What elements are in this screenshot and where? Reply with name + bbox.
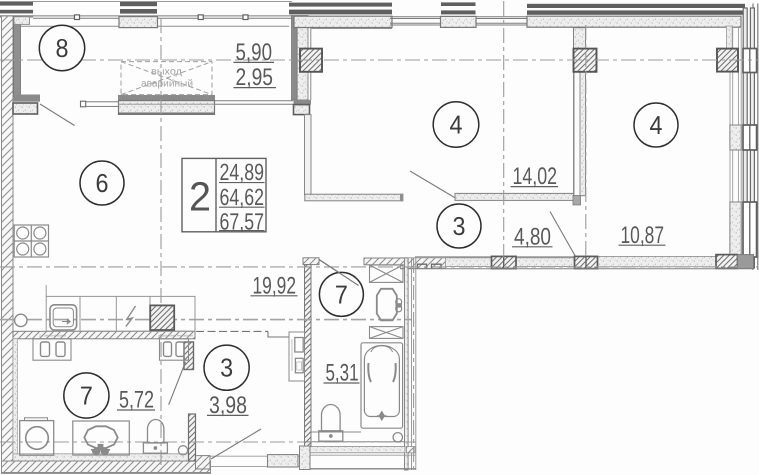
svg-text:4: 4 [650, 110, 663, 140]
svg-text:4: 4 [450, 110, 463, 140]
svg-text:64,62: 64,62 [220, 184, 265, 210]
svg-text:7: 7 [335, 279, 348, 309]
svg-text:7: 7 [80, 381, 93, 411]
svg-text:8: 8 [56, 33, 69, 63]
svg-text:2: 2 [189, 174, 211, 220]
svg-text:6: 6 [96, 168, 109, 198]
svg-text:умывальник Аквамарин: умывальник Аквамарин [158, 334, 193, 338]
svg-text:24,89: 24,89 [220, 159, 265, 185]
svg-text:2-х местная ванна: 2-х местная ванна [39, 334, 66, 338]
svg-text:выход: выход [151, 67, 182, 78]
svg-text:3: 3 [453, 211, 466, 241]
svg-text:аварийный: аварийный [141, 79, 193, 90]
svg-text:14,02: 14,02 [513, 163, 558, 190]
svg-text:3: 3 [220, 353, 233, 383]
svg-text:2,95: 2,95 [236, 64, 274, 91]
